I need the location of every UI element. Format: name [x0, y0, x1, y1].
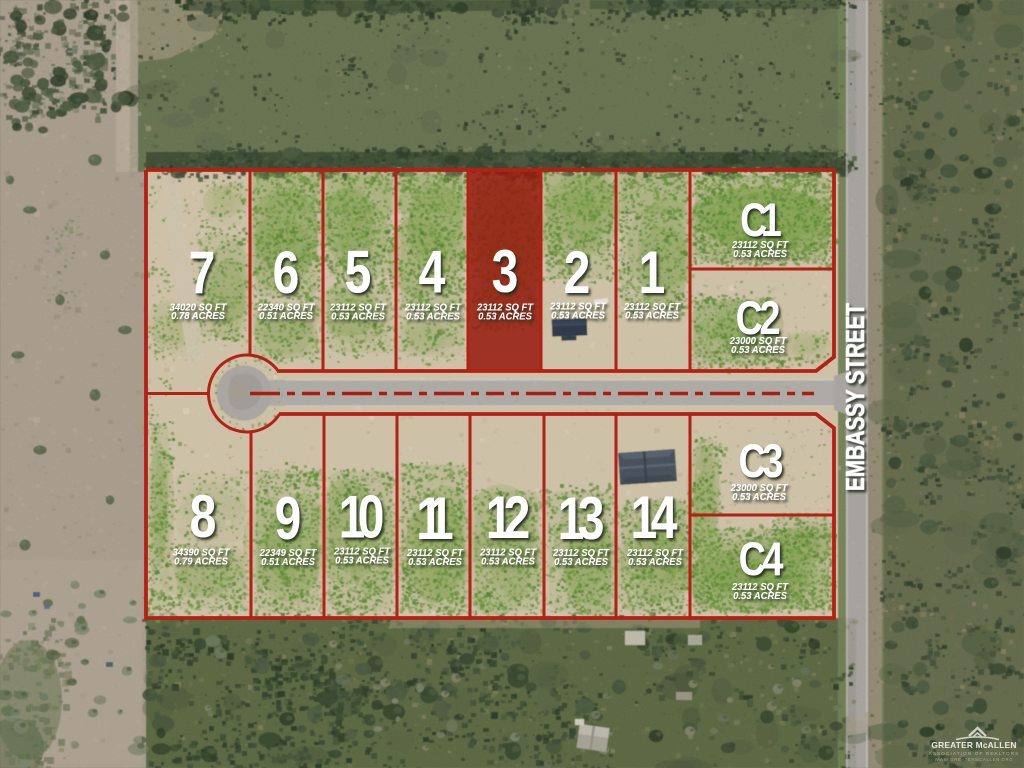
svg-text:4: 4 — [419, 238, 446, 305]
svg-text:11: 11 — [416, 485, 453, 552]
svg-text:3: 3 — [492, 238, 519, 305]
svg-text:0.53 ACRES: 0.53 ACRES — [732, 491, 786, 502]
svg-text:0.53 ACRES: 0.53 ACRES — [481, 556, 535, 567]
svg-text:1: 1 — [639, 239, 666, 306]
svg-text:WWW.GREATERMCALLEN.ORG: WWW.GREATERMCALLEN.ORG — [935, 757, 1014, 762]
svg-text:0.53 ACRES: 0.53 ACRES — [406, 311, 460, 322]
svg-text:C4: C4 — [739, 533, 784, 586]
svg-text:5: 5 — [345, 238, 372, 305]
svg-text:12: 12 — [486, 484, 531, 551]
svg-text:0.53 ACRES: 0.53 ACRES — [554, 556, 608, 567]
svg-text:0.53 ACRES: 0.53 ACRES — [628, 556, 682, 567]
svg-text:0.53 ACRES: 0.53 ACRES — [408, 556, 462, 567]
svg-text:0.53 ACRES: 0.53 ACRES — [733, 248, 787, 259]
svg-text:9: 9 — [275, 485, 302, 552]
svg-text:14: 14 — [631, 484, 678, 551]
svg-text:0.53 ACRES: 0.53 ACRES — [625, 310, 679, 321]
svg-text:6: 6 — [273, 239, 300, 306]
svg-text:7: 7 — [189, 239, 216, 306]
svg-text:0.51 ACRES: 0.51 ACRES — [261, 556, 315, 567]
svg-text:0.53 ACRES: 0.53 ACRES — [733, 590, 787, 601]
svg-text:0.51 ACRES: 0.51 ACRES — [259, 311, 313, 322]
svg-text:GREATER McALLEN: GREATER McALLEN — [931, 740, 1016, 750]
svg-text:13: 13 — [558, 485, 605, 552]
svg-text:10: 10 — [339, 483, 385, 550]
svg-text:8: 8 — [190, 483, 217, 550]
svg-text:0.78 ACRES: 0.78 ACRES — [171, 311, 225, 322]
svg-text:0.79 ACRES: 0.79 ACRES — [174, 556, 228, 567]
svg-text:0.53 ACRES: 0.53 ACRES — [551, 310, 605, 321]
svg-text:EMBASSY STREET: EMBASSY STREET — [841, 303, 870, 491]
svg-text:0.53 ACRES: 0.53 ACRES — [331, 311, 385, 322]
svg-text:0.53 ACRES: 0.53 ACRES — [478, 311, 532, 322]
svg-text:ASSOCIATION OF REALTORS: ASSOCIATION OF REALTORS — [929, 751, 1020, 756]
svg-text:0.53 ACRES: 0.53 ACRES — [335, 555, 389, 566]
svg-text:C3: C3 — [739, 435, 784, 488]
svg-text:2: 2 — [564, 239, 591, 306]
svg-text:0.53 ACRES: 0.53 ACRES — [731, 344, 785, 355]
